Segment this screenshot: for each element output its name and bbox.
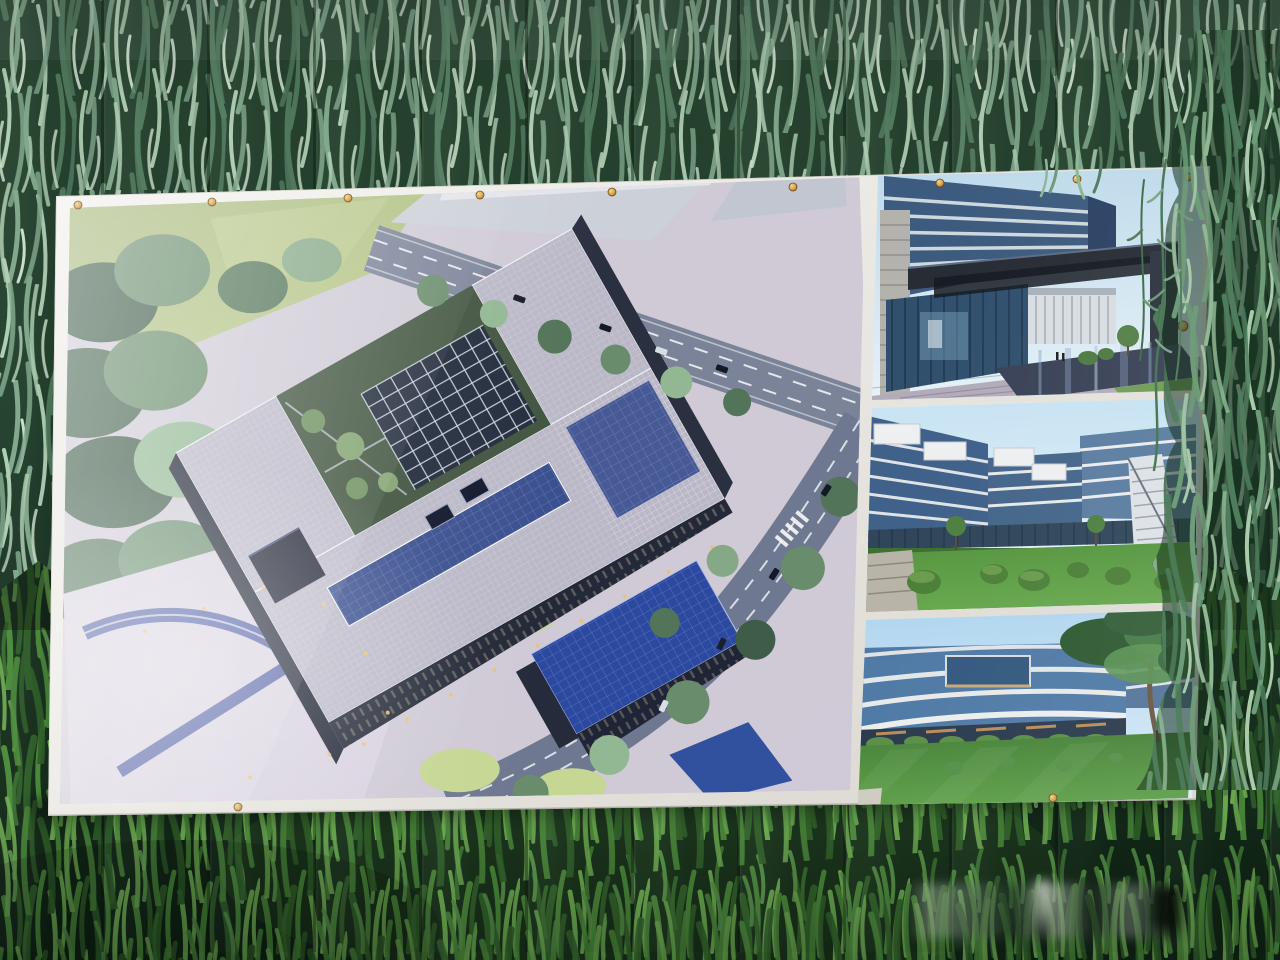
watermark-smear bbox=[1036, 880, 1050, 938]
watermark-smear-end bbox=[1152, 888, 1180, 928]
panel-aerial-site-view bbox=[20, 150, 891, 830]
blurred-watermark bbox=[908, 884, 1186, 938]
overhanging-leaves bbox=[1016, 30, 1280, 790]
hoarding-photo bbox=[0, 0, 1280, 960]
